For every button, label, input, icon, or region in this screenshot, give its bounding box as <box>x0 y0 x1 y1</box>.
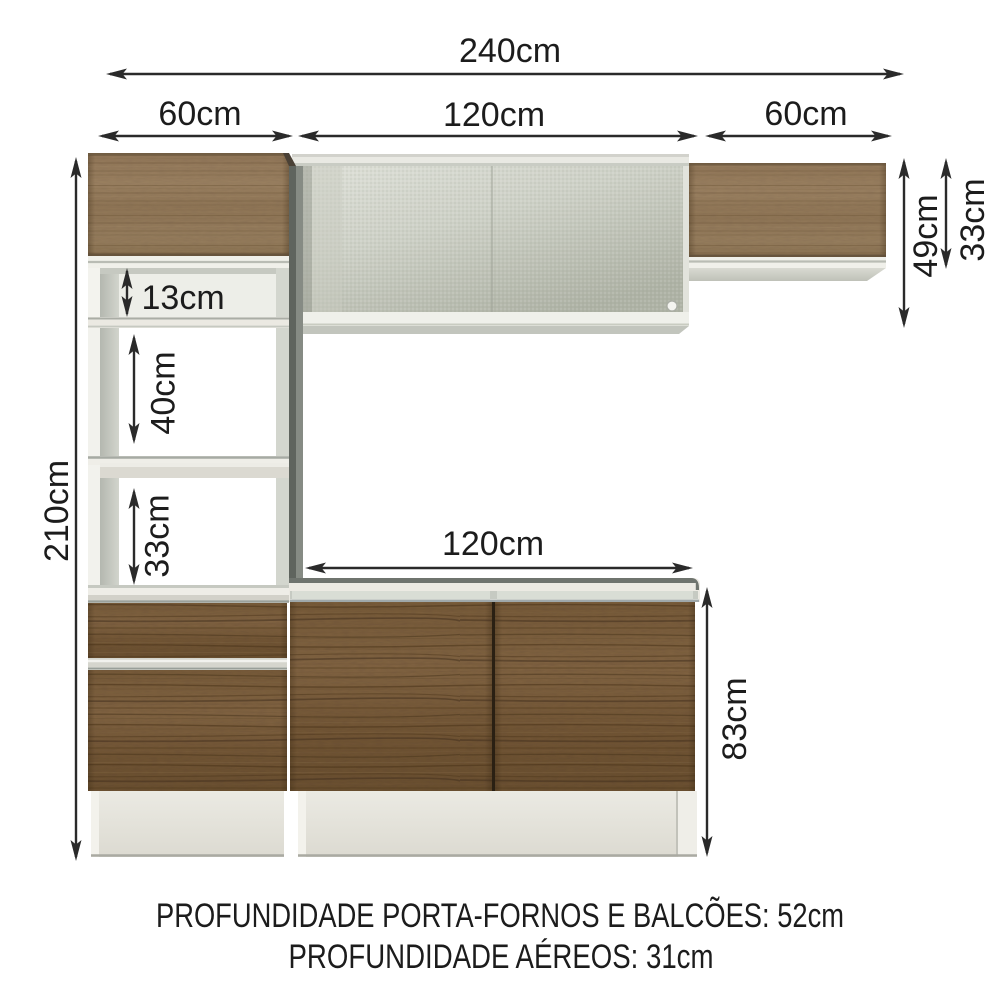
svg-text:120cm: 120cm <box>442 525 544 563</box>
svg-text:210cm: 210cm <box>38 460 76 562</box>
svg-text:33cm: 33cm <box>139 494 177 577</box>
svg-text:120cm: 120cm <box>443 96 545 134</box>
svg-text:60cm: 60cm <box>764 95 847 133</box>
svg-text:240cm: 240cm <box>459 32 561 70</box>
svg-text:13cm: 13cm <box>142 279 225 317</box>
svg-text:60cm: 60cm <box>158 95 241 133</box>
svg-text:49cm: 49cm <box>907 194 945 277</box>
svg-text:83cm: 83cm <box>716 677 754 760</box>
svg-text:PROFUNDIDADE AÉREOS: 31cm: PROFUNDIDADE AÉREOS: 31cm <box>289 938 714 976</box>
svg-text:PROFUNDIDADE PORTA-FORNOS E BA: PROFUNDIDADE PORTA-FORNOS E BALCÕES: 52c… <box>156 897 844 935</box>
svg-text:33cm: 33cm <box>954 178 992 261</box>
svg-text:40cm: 40cm <box>145 351 183 434</box>
